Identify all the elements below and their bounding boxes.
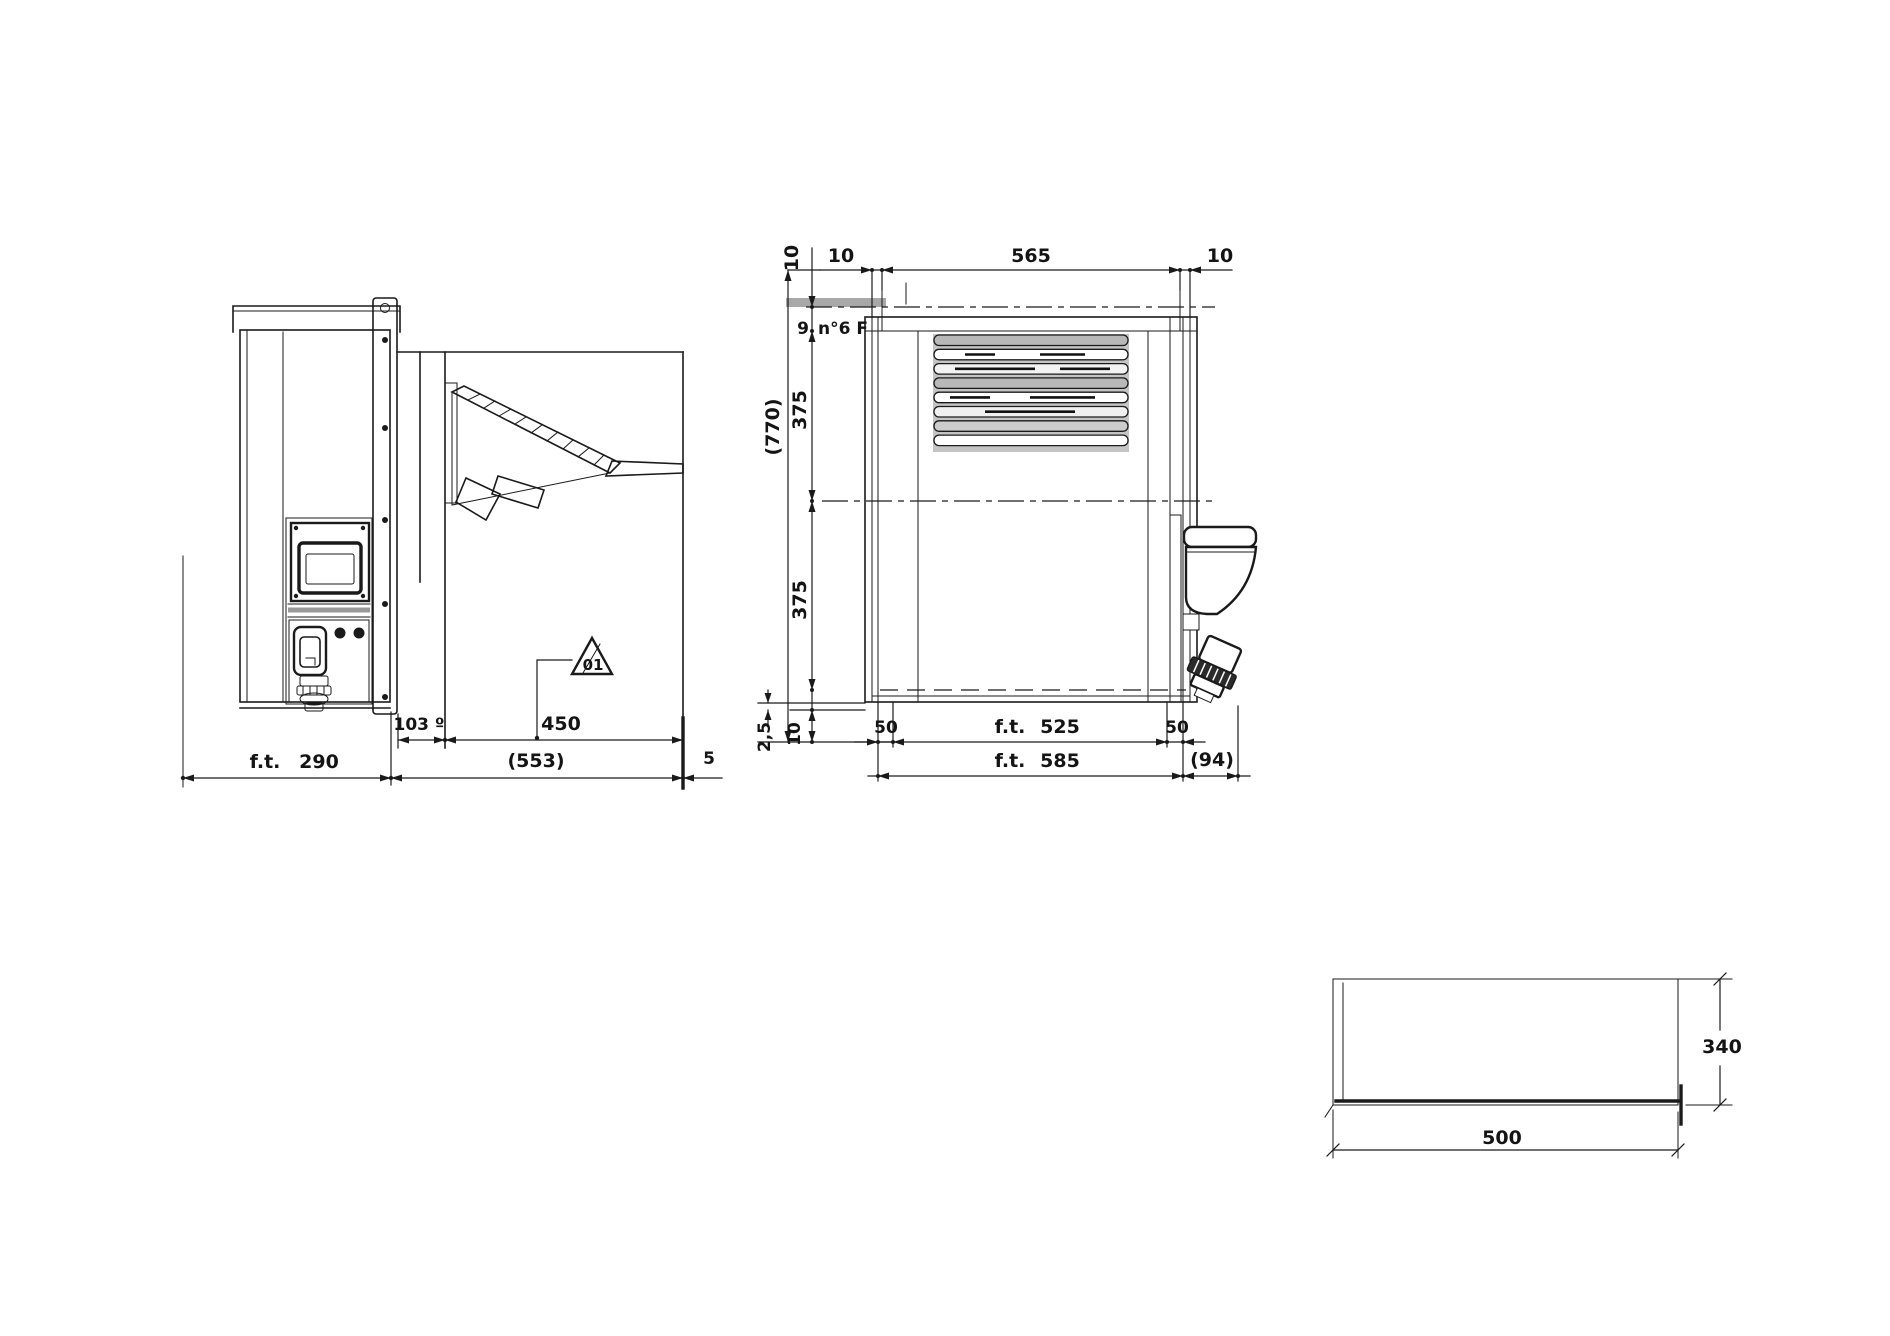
dim-label-103: 103 º [394, 715, 445, 735]
dim-label-500: 500 [1482, 1127, 1522, 1149]
dim-label-450: 450 [541, 713, 581, 735]
side-plug [297, 676, 331, 711]
dim-label-553: (553) [507, 750, 564, 772]
cutout-dimensions: 340 500 [1327, 973, 1742, 1158]
dim-label-770: (770) [762, 398, 784, 455]
holes-note-label: n°6 F [818, 319, 868, 339]
dim-label-10-top-vertical: 10 [781, 245, 803, 271]
dim-label-ft: f.t. [250, 751, 281, 773]
dim-label-525: 525 [1040, 716, 1080, 738]
dim-label-94: (94) [1190, 749, 1234, 771]
gasket-strip [786, 298, 886, 307]
dim-label-9: 9 [797, 319, 809, 339]
cutout-view: 340 500 [1325, 973, 1742, 1158]
dim-label-50-left: 50 [874, 718, 898, 738]
side-view-dimensions: 103 º 450 f.t. 290 (553) 5 [181, 712, 722, 785]
ventilation-grille [933, 334, 1129, 452]
rear-view: 10 565 10 10 9 n°6 F 375 375 (7 [755, 245, 1256, 781]
dim-label-585: 585 [1040, 750, 1080, 772]
dim-label-50-right: 50 [1165, 718, 1189, 738]
dim-label-10-left: 10 [828, 245, 854, 267]
dim-label-565: 565 [1011, 245, 1051, 267]
indicator-dot [354, 628, 365, 639]
indicator-dot [335, 628, 346, 639]
dim-label-375-upper: 375 [789, 390, 811, 430]
rear-view-dimensions: 10 565 10 10 9 n°6 F 375 375 (7 [755, 245, 1250, 781]
side-view-control-panel [286, 518, 372, 711]
side-view-mounting-plate [373, 298, 397, 714]
dim-label-375-lower: 375 [789, 580, 811, 620]
triangle-ref-label: 01 [583, 656, 604, 674]
main-switch [294, 627, 326, 675]
dim-label-10-bottom: 10 [785, 722, 805, 746]
power-plug [1179, 633, 1248, 708]
dim-label-ft-525: f.t. [995, 716, 1026, 738]
cutout-outline [1325, 979, 1681, 1124]
dim-label-340: 340 [1702, 1036, 1742, 1058]
dim-label-10-right: 10 [1207, 245, 1233, 267]
side-view: 01 103 º 450 f.t. [181, 298, 722, 788]
dim-label-ft-585: f.t. [995, 750, 1026, 772]
dim-label-290: 290 [299, 751, 339, 773]
dim-label-2-5: 2,5 [755, 722, 775, 752]
dim-label-5: 5 [703, 749, 715, 769]
technical-drawing-page: 01 103 º 450 f.t. [0, 0, 1890, 1336]
technical-drawing: 01 103 º 450 f.t. [0, 0, 1890, 1336]
